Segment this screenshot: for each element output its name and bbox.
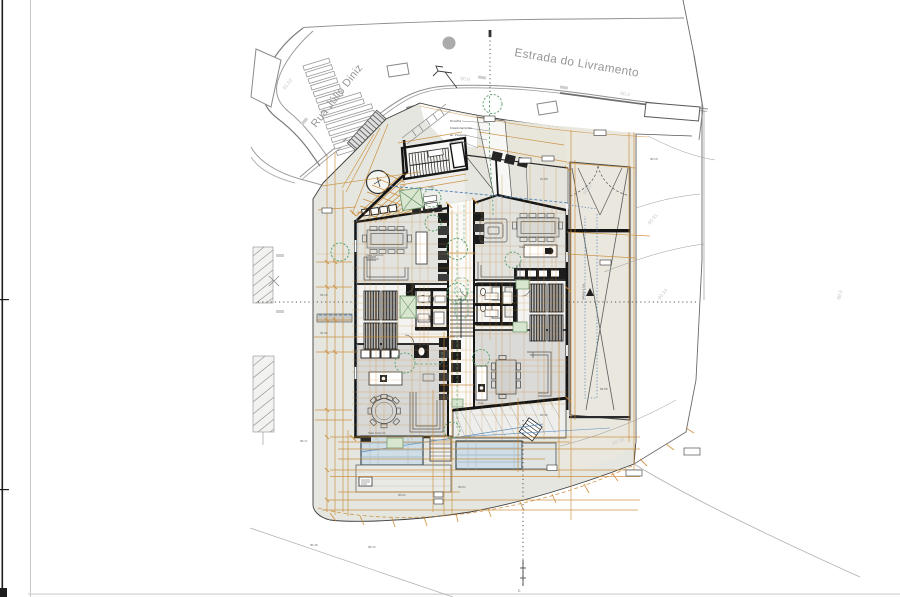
svg-text:90.59: 90.59 [650,157,658,161]
svg-text:24.80: 24.80 [540,177,548,181]
svg-text:90.45: 90.45 [368,545,376,549]
svg-text:90.04: 90.04 [398,493,406,497]
svg-text:95.95: 95.95 [320,331,328,335]
svg-text:89.60: 89.60 [600,387,608,391]
svg-text:96.10: 96.10 [320,293,328,297]
svg-text:4.60: 4.60 [428,185,434,189]
svg-text:31.20 m2: 31.20 m2 [366,257,379,261]
svg-text:Recolha: Recolha [450,119,461,123]
svg-text:Sala: Sala [519,245,525,249]
svg-text:rampa 4.1%: rampa 4.1% [581,283,586,300]
svg-text:90.47: 90.47 [300,439,308,443]
svg-text:90.04: 90.04 [458,485,466,489]
svg-text:89.90: 89.90 [540,413,548,417]
svg-text:Sala Comum: Sala Comum [368,431,386,435]
svg-text:ac. Pessoas: ac. Pessoas [450,133,467,137]
svg-text:90.46: 90.46 [310,543,318,547]
svg-text:Coz.: Coz. [478,401,484,405]
